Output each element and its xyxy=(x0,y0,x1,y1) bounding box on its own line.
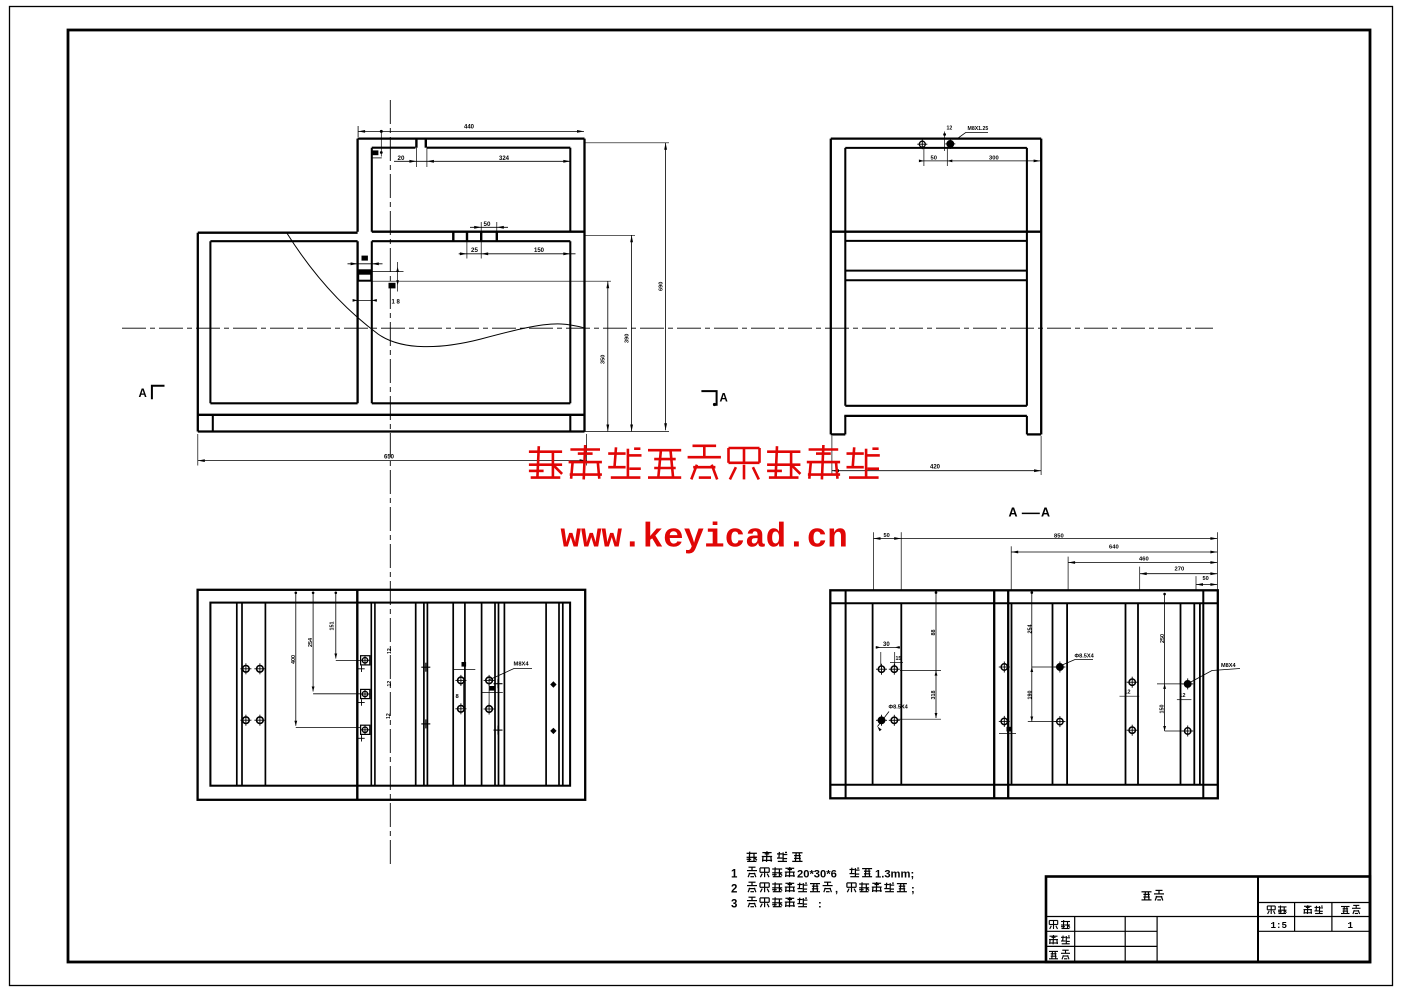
svg-text:1:5: 1:5 xyxy=(1271,920,1288,931)
svg-text:50: 50 xyxy=(1203,576,1209,582)
svg-text:A: A xyxy=(1041,506,1050,520)
svg-text:12: 12 xyxy=(1125,690,1131,696)
svg-text:400: 400 xyxy=(291,655,297,664)
svg-text:30: 30 xyxy=(883,642,890,648)
svg-text:254: 254 xyxy=(1027,625,1033,634)
svg-text:12: 12 xyxy=(1180,693,1186,699)
svg-text:150: 150 xyxy=(534,248,545,254)
svg-text:270: 270 xyxy=(1175,566,1185,572)
svg-text:12: 12 xyxy=(947,126,953,132)
svg-text:3: 3 xyxy=(731,899,737,911)
svg-text::: : xyxy=(818,899,822,911)
svg-text:12: 12 xyxy=(386,713,392,719)
svg-text:www.keyicad.cn: www.keyicad.cn xyxy=(561,520,848,558)
svg-text:M8X1.25: M8X1.25 xyxy=(968,126,989,132)
svg-text:690: 690 xyxy=(659,282,665,291)
svg-text:,: , xyxy=(835,884,838,896)
svg-text:Φ8.5X4: Φ8.5X4 xyxy=(1075,654,1095,660)
svg-text:1 8: 1 8 xyxy=(392,299,401,305)
svg-text:850: 850 xyxy=(1054,534,1064,540)
svg-text:A: A xyxy=(720,393,728,405)
svg-text:150: 150 xyxy=(1159,705,1165,714)
svg-text:12: 12 xyxy=(387,681,393,687)
svg-text:254: 254 xyxy=(308,638,314,647)
svg-text:A: A xyxy=(1009,506,1018,520)
svg-text:300: 300 xyxy=(989,155,999,161)
svg-text:20: 20 xyxy=(398,155,405,162)
svg-text:460: 460 xyxy=(1139,556,1149,562)
svg-text:318: 318 xyxy=(931,691,937,700)
svg-text:2: 2 xyxy=(731,884,737,896)
svg-text:190: 190 xyxy=(1027,691,1033,700)
svg-text:1: 1 xyxy=(731,869,738,881)
svg-text:640: 640 xyxy=(1109,545,1119,551)
svg-text:M8X4: M8X4 xyxy=(1221,663,1237,669)
svg-text:A: A xyxy=(139,388,147,400)
svg-text:15: 15 xyxy=(896,656,902,662)
svg-text:250: 250 xyxy=(1160,634,1166,643)
svg-text:324: 324 xyxy=(499,156,510,162)
svg-text:50: 50 xyxy=(931,155,937,161)
svg-text:Φ8.5X4: Φ8.5X4 xyxy=(889,705,909,711)
svg-text:420: 420 xyxy=(930,464,941,470)
svg-text:20*30*6: 20*30*6 xyxy=(797,869,837,881)
svg-text:390: 390 xyxy=(625,334,631,343)
svg-text:1.3mm;: 1.3mm; xyxy=(875,869,914,881)
svg-text:50: 50 xyxy=(884,533,890,539)
svg-text:50: 50 xyxy=(484,221,491,228)
svg-text:1: 1 xyxy=(1348,920,1354,931)
svg-text:M8X4: M8X4 xyxy=(514,662,530,668)
svg-text:88: 88 xyxy=(931,630,937,636)
svg-text:350: 350 xyxy=(601,355,607,364)
svg-text:25: 25 xyxy=(471,247,478,254)
svg-text:;: ; xyxy=(911,884,915,896)
svg-text:12: 12 xyxy=(387,648,393,654)
svg-text:440: 440 xyxy=(464,125,475,131)
svg-text:650: 650 xyxy=(384,455,395,461)
svg-text:151: 151 xyxy=(330,622,336,631)
